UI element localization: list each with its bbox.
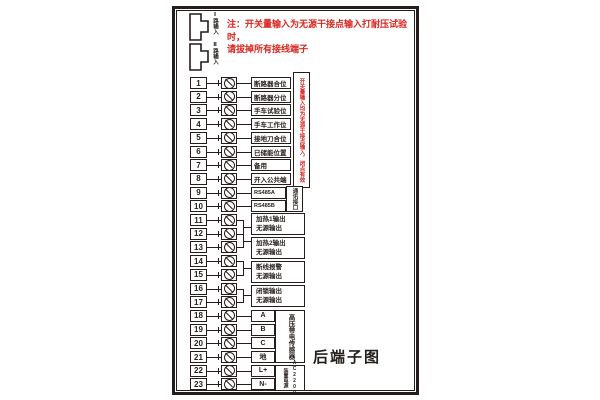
contact-tick	[218, 313, 219, 319]
contact-tick	[218, 340, 219, 346]
wire	[237, 152, 251, 153]
terminal-label: 地	[251, 351, 275, 363]
wire	[237, 316, 251, 317]
screw-terminal-icon	[221, 255, 237, 267]
contact-tick	[218, 381, 219, 387]
output-group-title: 加热1输出	[256, 215, 286, 224]
contact-tick	[218, 354, 219, 360]
screw-terminal-icon	[221, 324, 237, 336]
output-group-title: 闭锁输出	[256, 287, 282, 296]
contact-tick	[218, 176, 219, 182]
terminal-number: 20	[190, 337, 207, 349]
contact-tick	[218, 107, 219, 113]
screw-terminal-icon	[221, 378, 237, 390]
terminal-label: 断路器合位	[251, 77, 291, 89]
wire	[237, 97, 251, 98]
terminal-number: 23	[190, 378, 207, 390]
contact-tick	[218, 162, 219, 168]
brace-tip	[243, 295, 251, 296]
wire	[237, 138, 251, 139]
terminal-number: 13	[190, 241, 207, 253]
terminal-number: 8	[190, 173, 207, 185]
contact-tick	[218, 286, 219, 292]
brace-tip	[243, 241, 251, 242]
output-group-sub: 无源输出	[256, 296, 282, 305]
screw-terminal-icon	[221, 228, 237, 240]
terminal-number: 5	[190, 132, 207, 144]
screw-terminal-icon	[221, 173, 237, 185]
contact-tick	[218, 231, 219, 237]
wire	[237, 206, 251, 207]
terminal-number: 10	[190, 200, 207, 212]
contact-tick	[218, 203, 219, 209]
terminal-label: N-	[251, 378, 275, 390]
wire	[237, 179, 251, 180]
terminal-label: 断路器分位	[251, 91, 291, 103]
terminal-label: 接地刀合位	[251, 132, 291, 144]
diagram-caption: 后端子图	[313, 346, 381, 367]
screw-terminal-icon	[221, 365, 237, 377]
terminal-label: RS485B	[251, 200, 286, 212]
screw-terminal-icon	[221, 296, 237, 308]
device-power-name: 装置电源	[283, 366, 290, 390]
terminal-number: 17	[190, 296, 207, 308]
wire	[237, 371, 251, 372]
wire	[237, 193, 251, 194]
terminal-number: 15	[190, 269, 207, 281]
terminal-label: 备用	[251, 159, 291, 171]
terminal-label: 已储能位置	[251, 146, 291, 158]
output-group-label: 加热1输出无源输出	[251, 213, 305, 235]
wire	[237, 343, 251, 344]
screw-terminal-icon	[221, 187, 237, 199]
contact-tick	[218, 190, 219, 196]
screw-terminal-icon	[221, 118, 237, 130]
screw-terminal-icon	[221, 310, 237, 322]
output-group-sub: 无源输出	[256, 248, 282, 257]
screw-terminal-icon	[221, 77, 237, 89]
contact-tick	[218, 272, 219, 278]
terminal-label: C	[251, 337, 275, 349]
screw-terminal-icon	[221, 351, 237, 363]
terminal-label: B	[251, 324, 275, 336]
terminal-number: 1	[190, 77, 207, 89]
terminal-number: 9	[190, 187, 207, 199]
output-group-sub: 无源输出	[256, 272, 282, 281]
contact-tick	[218, 299, 219, 305]
wire	[237, 110, 251, 111]
contact-tick	[218, 244, 219, 250]
screw-terminal-icon	[221, 200, 237, 212]
wire	[237, 275, 244, 276]
terminal-label: 开入公共端	[251, 173, 291, 185]
terminal-label: RS485A	[251, 187, 286, 199]
contact-tick	[218, 217, 219, 223]
device-power-label: 装置电源 AC220V	[275, 365, 305, 391]
terminal-number: 6	[190, 146, 207, 158]
screw-terminal-icon	[221, 337, 237, 349]
terminal-number: 16	[190, 283, 207, 295]
wire	[237, 124, 251, 125]
contact-tick	[218, 327, 219, 333]
terminal-number: 3	[190, 104, 207, 116]
contact-tick	[218, 149, 219, 155]
screw-terminal-icon	[221, 104, 237, 116]
wire	[237, 384, 251, 385]
terminal-number: 22	[190, 365, 207, 377]
screw-terminal-icon	[221, 214, 237, 226]
rear-terminal-diagram: Ⅰ路输入 Ⅱ路输入 注：开关量输入为无源干接点输入打耐压试验时， 请拔掉所有接线…	[172, 6, 419, 395]
comm-port-label: 通讯接口	[286, 186, 303, 212]
wire	[237, 247, 244, 248]
output-group-sub: 无源输出	[256, 224, 282, 233]
contact-tick	[218, 368, 219, 374]
terminal-number: 12	[190, 228, 207, 240]
brace-tip	[243, 227, 251, 228]
contact-tick	[218, 80, 219, 86]
output-group-title: 断线报警	[256, 263, 282, 272]
screw-terminal-icon	[221, 269, 237, 281]
output-group-label: 断线报警无源输出	[251, 261, 305, 283]
terminal-label: 手车试验位	[251, 104, 291, 116]
terminal-number: 11	[190, 214, 207, 226]
terminal-diagram-page: Ⅰ路输入 Ⅱ路输入 注：开关量输入为无源干接点输入打耐压试验时， 请拔掉所有接线…	[0, 0, 600, 400]
screw-terminal-icon	[221, 159, 237, 171]
contact-tick	[218, 258, 219, 264]
brace-tip	[243, 268, 251, 269]
contact-tick	[218, 94, 219, 100]
screw-terminal-icon	[221, 132, 237, 144]
terminal-number: 18	[190, 310, 207, 322]
wire	[237, 83, 251, 84]
terminal-number: 2	[190, 91, 207, 103]
terminal-number: 7	[190, 159, 207, 171]
output-group-label: 闭锁输出无源输出	[251, 285, 305, 307]
output-group-label: 加热2输出无源输出	[251, 237, 305, 259]
terminal-label: 手车工作位	[251, 118, 291, 130]
terminal-number: 14	[190, 255, 207, 267]
wire	[237, 302, 244, 303]
terminal-number: 19	[190, 324, 207, 336]
terminal-number: 21	[190, 351, 207, 363]
contact-tick	[218, 121, 219, 127]
terminal-label: L+	[251, 365, 275, 377]
wire	[237, 357, 251, 358]
terminal-label: A	[251, 310, 275, 322]
screw-terminal-icon	[221, 241, 237, 253]
digital-input-note: 开关量输入均为无源干接点输入，闭点有效	[293, 72, 310, 188]
screw-terminal-icon	[221, 146, 237, 158]
hv-sensor-label: 高压带电传感器	[275, 310, 305, 363]
terminal-number: 4	[190, 118, 207, 130]
screw-terminal-icon	[221, 91, 237, 103]
output-group-title: 加热2输出	[256, 239, 286, 248]
device-power-rating: AC220V	[292, 366, 298, 390]
contact-tick	[218, 135, 219, 141]
screw-terminal-icon	[221, 283, 237, 295]
wire	[237, 165, 251, 166]
wire	[237, 330, 251, 331]
